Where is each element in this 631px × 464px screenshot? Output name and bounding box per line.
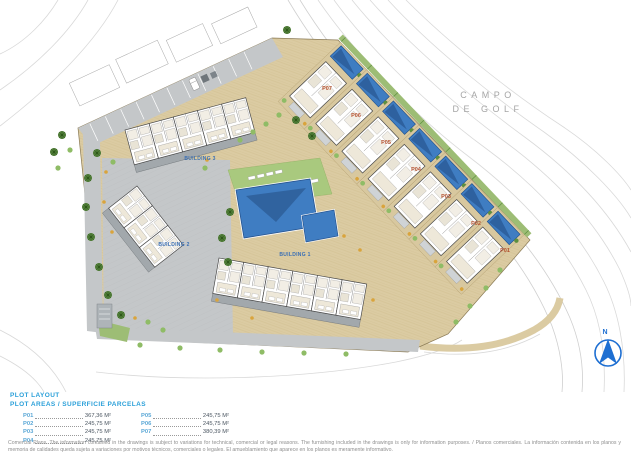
compass-north-label: N <box>602 329 607 336</box>
golf-label-line1: CAMPO <box>460 90 516 100</box>
dotted-leader <box>153 418 201 419</box>
plot-area-value: 245,75 M² <box>85 421 111 428</box>
dotted-leader <box>153 435 201 436</box>
plot-area-row: P07 380,39 M² <box>141 429 229 436</box>
plot-label-p03: P03 <box>441 194 451 200</box>
golf-course-label: CAMPO DE GOLF <box>452 90 523 114</box>
site-plan: BUILDING 3 BUILDING 2 BUILDING 1 P07 P06… <box>0 0 631 392</box>
entrance-ramp <box>97 304 112 328</box>
building-2-label: BUILDING 2 <box>158 242 189 248</box>
plot-label-p07: P07 <box>322 86 332 92</box>
kids-pool <box>302 210 338 242</box>
dotted-leader <box>35 435 83 436</box>
plot-area-value: 245,75 M² <box>203 421 229 428</box>
plot-code: P05 <box>141 413 151 420</box>
plot-label-p04: P04 <box>411 167 422 173</box>
golf-label-line2: DE GOLF <box>452 104 523 114</box>
legal-disclaimer: Comercial Plans. The information contain… <box>8 440 621 454</box>
building-1-label: BUILDING 1 <box>279 252 310 258</box>
plot-code: P07 <box>141 429 151 436</box>
plot-label-p02: P02 <box>471 221 481 227</box>
legend-title: PLOT LAYOUT <box>10 391 229 400</box>
plot-code: P02 <box>23 421 33 428</box>
plot-code: P03 <box>23 429 33 436</box>
dotted-leader <box>35 418 83 419</box>
plot-area-value: 380,39 M² <box>203 429 229 436</box>
plot-area-row: P03 245,75 M² <box>23 429 111 436</box>
plot-code: P01 <box>23 413 33 420</box>
plot-code: P06 <box>141 421 151 428</box>
plot-label-p06: P06 <box>351 113 361 119</box>
plot-area-value: 367,36 M² <box>85 413 111 420</box>
plot-area-row: P05 245,75 M² <box>141 413 229 420</box>
plot-label-p05: P05 <box>381 140 391 146</box>
plot-area-row: P02 245,75 M² <box>23 421 111 428</box>
building-3-label: BUILDING 3 <box>184 156 215 162</box>
dotted-leader <box>153 426 201 427</box>
compass-icon: N <box>595 329 621 366</box>
plot-area-value: 245,75 M² <box>85 429 111 436</box>
plot-label-p01: P01 <box>500 248 510 254</box>
masterplan-sheet: BUILDING 3 BUILDING 2 BUILDING 1 P07 P06… <box>0 0 631 464</box>
dotted-leader <box>35 426 83 427</box>
plot-area-row: P01 367,36 M² <box>23 413 111 420</box>
legend-subtitle: PLOT AREAS / SUPERFICIE PARCELAS <box>10 400 229 409</box>
plot-area-row: P06 245,75 M² <box>141 421 229 428</box>
plot-areas-legend: PLOT LAYOUT PLOT AREAS / SUPERFICIE PARC… <box>10 391 229 446</box>
plot-area-value: 245,75 M² <box>203 413 229 420</box>
